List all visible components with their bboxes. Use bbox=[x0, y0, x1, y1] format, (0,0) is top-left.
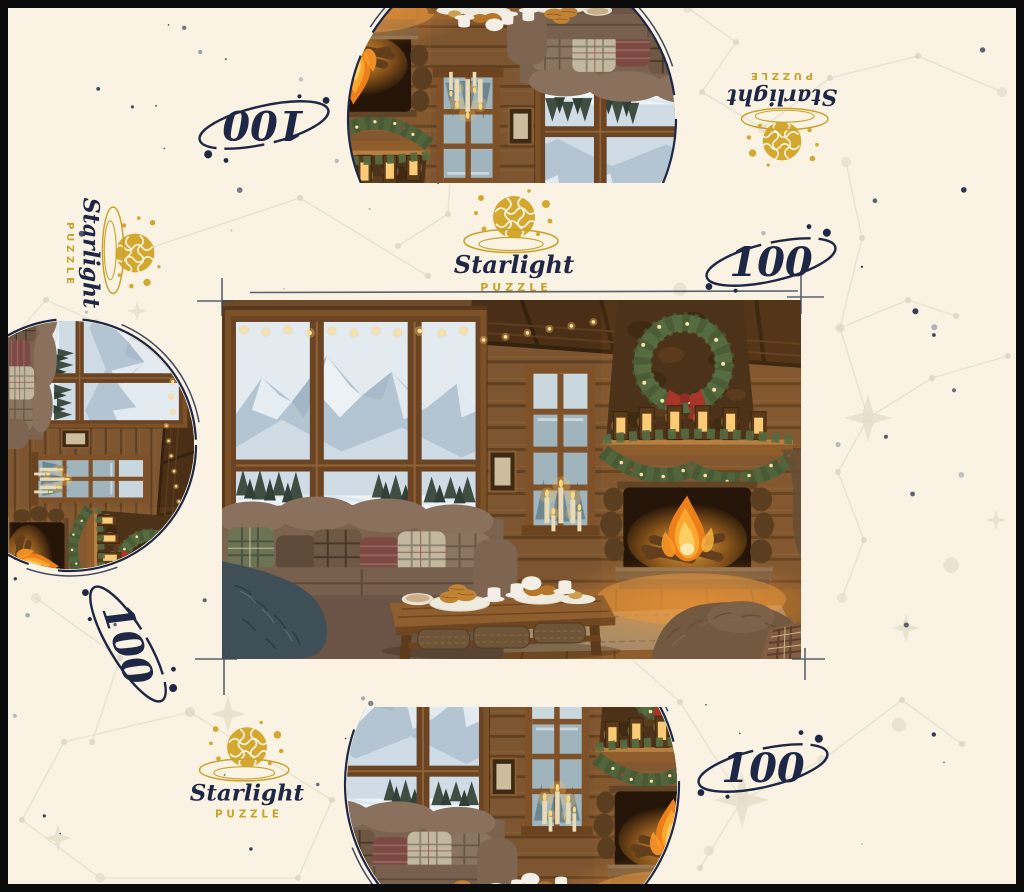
brand-subtitle: PUZZLE bbox=[480, 281, 551, 294]
brand-subtitle: PUZZLE bbox=[64, 222, 75, 288]
moon-puzzle-icon bbox=[102, 207, 160, 293]
brand-subtitle: PUZZLE bbox=[747, 70, 813, 81]
brand-subtitle: PUZZLE bbox=[215, 809, 283, 821]
brand-name: Starlight bbox=[190, 780, 305, 806]
brand-name: Starlight bbox=[727, 84, 838, 110]
brand-logo-left: Starlight PUZZLE bbox=[61, 179, 166, 326]
brand-name: Starlight bbox=[78, 198, 104, 309]
box-top-panel bbox=[0, 0, 1024, 183]
piece-count-number: 100 bbox=[721, 745, 805, 792]
artwork-circle-bottom bbox=[347, 707, 677, 884]
piece-count-number: 100 bbox=[222, 101, 306, 148]
box-bottom-panel bbox=[0, 707, 1024, 884]
piece-count-number: 100 bbox=[729, 239, 813, 286]
piece-count-right: 100 bbox=[696, 220, 846, 304]
artwork-circle-left bbox=[0, 321, 194, 569]
moon-puzzle-icon bbox=[464, 189, 558, 252]
artwork-circle-top bbox=[349, 0, 675, 183]
piece-count-bottom-right: 100 bbox=[688, 726, 838, 810]
brand-logo-top-right: Starlight PUZZLE bbox=[708, 67, 855, 172]
piece-count-top-left: 100 bbox=[189, 83, 339, 167]
moon-puzzle-icon bbox=[742, 108, 828, 166]
brand-name: Starlight bbox=[454, 250, 574, 279]
brand-logo-center: Starlight PUZZLE bbox=[434, 184, 594, 298]
puzzle-artwork-main bbox=[222, 300, 801, 659]
puzzle-box-layout: Starlight PUZZLE Starlight PUZZLE Starli… bbox=[0, 0, 1024, 892]
moon-puzzle-icon bbox=[200, 721, 289, 781]
brand-logo-bottom: Starlight PUZZLE bbox=[171, 716, 323, 824]
